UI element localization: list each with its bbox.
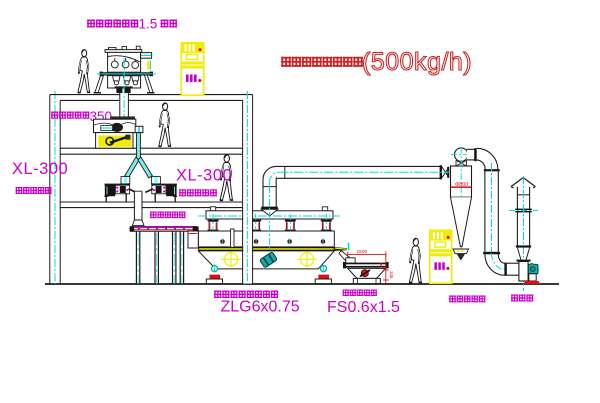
svg-text:1.5: 1.5 <box>139 16 158 31</box>
svg-text:ZLG6x0.75: ZLG6x0.75 <box>221 299 300 316</box>
svg-text:XL-300: XL-300 <box>12 160 68 178</box>
svg-text:FS0.6x1.5: FS0.6x1.5 <box>327 299 400 316</box>
svg-text:(500kg/h): (500kg/h) <box>362 48 472 76</box>
svg-text:1500: 1500 <box>357 249 368 255</box>
svg-text:345: 345 <box>389 271 394 279</box>
svg-text:XL-300: XL-300 <box>176 167 232 185</box>
svg-text:Φ800: Φ800 <box>455 182 468 188</box>
